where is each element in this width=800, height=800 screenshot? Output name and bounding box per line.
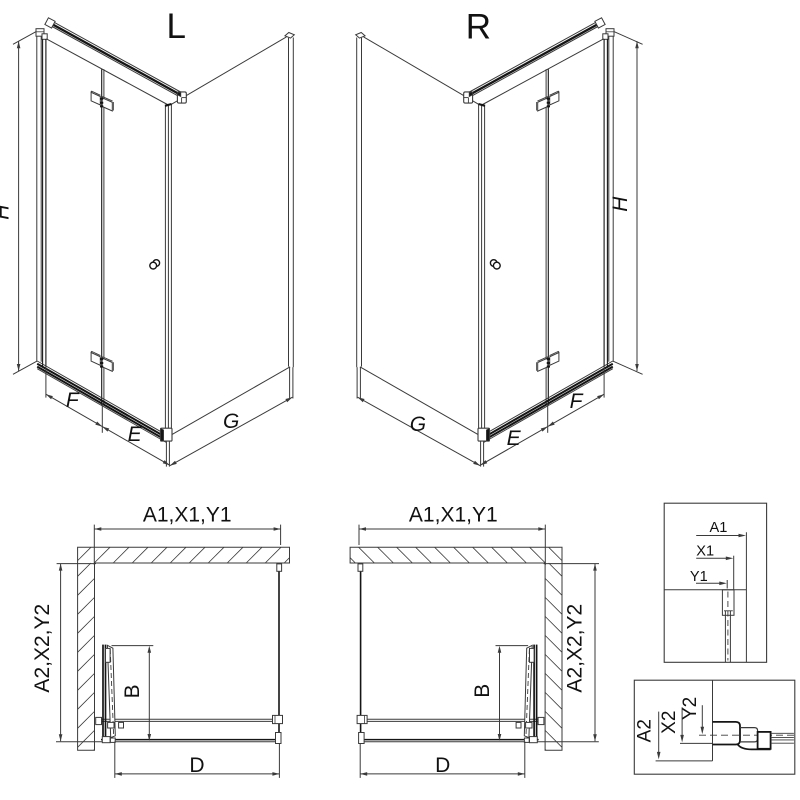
svg-text:B: B [471, 684, 494, 698]
svg-text:A1: A1 [709, 520, 727, 536]
svg-text:A2: A2 [634, 719, 655, 742]
svg-text:F: F [66, 389, 80, 412]
svg-text:B: B [121, 684, 144, 698]
svg-text:X2: X2 [659, 711, 680, 734]
svg-text:X1: X1 [696, 543, 714, 559]
svg-text:H: H [0, 204, 14, 220]
svg-text:A1,X1,Y1: A1,X1,Y1 [143, 503, 232, 526]
svg-text:R: R [466, 8, 491, 47]
svg-text:G: G [223, 410, 239, 433]
svg-text:A1,X1,Y1: A1,X1,Y1 [409, 503, 498, 526]
svg-text:D: D [189, 754, 204, 777]
svg-text:H: H [609, 196, 632, 212]
svg-text:A2,X2,Y2: A2,X2,Y2 [563, 604, 586, 693]
svg-text:G: G [410, 413, 426, 436]
svg-text:A2,X2,Y2: A2,X2,Y2 [31, 604, 54, 693]
svg-text:D: D [435, 754, 450, 777]
svg-text:L: L [167, 7, 186, 46]
svg-text:F: F [570, 390, 584, 413]
svg-text:Y1: Y1 [690, 569, 708, 585]
svg-text:Y2: Y2 [680, 697, 701, 720]
svg-text:E: E [128, 423, 143, 446]
svg-text:E: E [507, 427, 522, 450]
